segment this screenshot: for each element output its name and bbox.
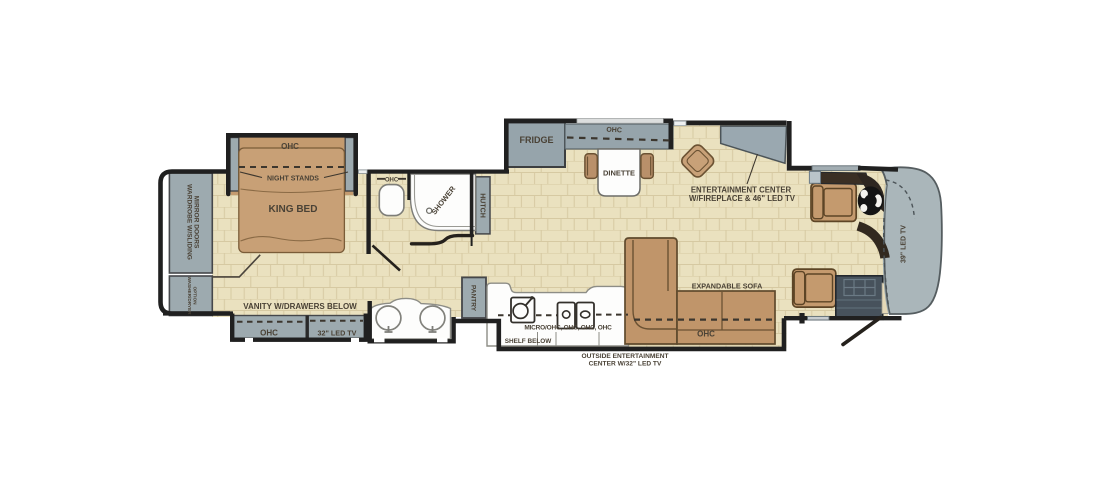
svg-text:PANTRY: PANTRY [470, 285, 477, 312]
svg-text:KING BED: KING BED [269, 204, 318, 215]
svg-text:OHC: OHC [697, 330, 715, 339]
svg-text:32" LED TV: 32" LED TV [318, 329, 357, 338]
svg-text:OHC: OHC [281, 142, 299, 151]
svg-text:FRIDGE: FRIDGE [519, 135, 553, 145]
svg-text:DINETTE: DINETTE [603, 169, 635, 178]
svg-text:HUTCH: HUTCH [479, 193, 486, 218]
svg-text:SHELF BELOW: SHELF BELOW [505, 338, 552, 345]
svg-text:VANITY W/DRAWERS BELOW: VANITY W/DRAWERS BELOW [243, 302, 357, 311]
svg-text:NIGHT STANDS: NIGHT STANDS [267, 176, 319, 183]
svg-text:CENTER W/32" LED TV: CENTER W/32" LED TV [589, 361, 662, 368]
svg-text:39" LED TV: 39" LED TV [901, 225, 908, 263]
svg-text:OHC: OHC [385, 178, 399, 184]
svg-text:EXPANDABLE SOFA: EXPANDABLE SOFA [692, 282, 763, 291]
svg-text:W/FIREPLACE & 46" LED TV: W/FIREPLACE & 46" LED TV [689, 194, 796, 203]
svg-text:OUTSIDE ENTERTAINMENT: OUTSIDE ENTERTAINMENT [581, 353, 668, 360]
svg-text:MICRO/OHC, OHC, OHC, OHC: MICRO/OHC, OHC, OHC, OHC [524, 325, 612, 332]
svg-text:OHC: OHC [606, 127, 622, 135]
svg-text:OHC: OHC [260, 329, 278, 338]
